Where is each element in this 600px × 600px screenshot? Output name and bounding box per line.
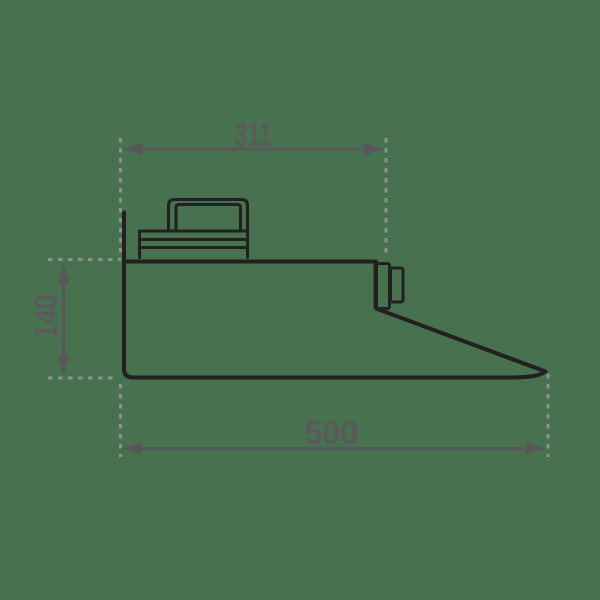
dimension-value-top-width: 311 xyxy=(234,116,272,153)
dimension-value-height: 140 xyxy=(28,295,65,340)
duct-flange-spigot xyxy=(391,268,404,302)
arrow-up-icon xyxy=(57,262,70,284)
hood-body-outline xyxy=(124,213,546,378)
technical-drawing: 311 140 500 xyxy=(0,0,600,600)
filter-stack xyxy=(140,231,248,258)
arrow-right-icon xyxy=(364,143,386,156)
drawing-canvas: 311 140 500 xyxy=(0,0,600,600)
dimension-value-total-width: 500 xyxy=(304,414,358,451)
dimension-top-width: 311 xyxy=(122,116,386,155)
arrow-right-icon xyxy=(526,442,548,455)
hood-profile xyxy=(124,200,546,378)
arrow-left-icon xyxy=(121,442,143,455)
dimension-total-width: 500 xyxy=(121,414,548,455)
dimension-height: 140 xyxy=(28,262,70,377)
filter-stack-outline xyxy=(140,231,248,258)
motor-housing xyxy=(169,200,248,232)
arrow-left-icon xyxy=(122,143,144,156)
motor-housing-inner xyxy=(176,205,241,232)
arrow-down-icon xyxy=(57,355,70,377)
